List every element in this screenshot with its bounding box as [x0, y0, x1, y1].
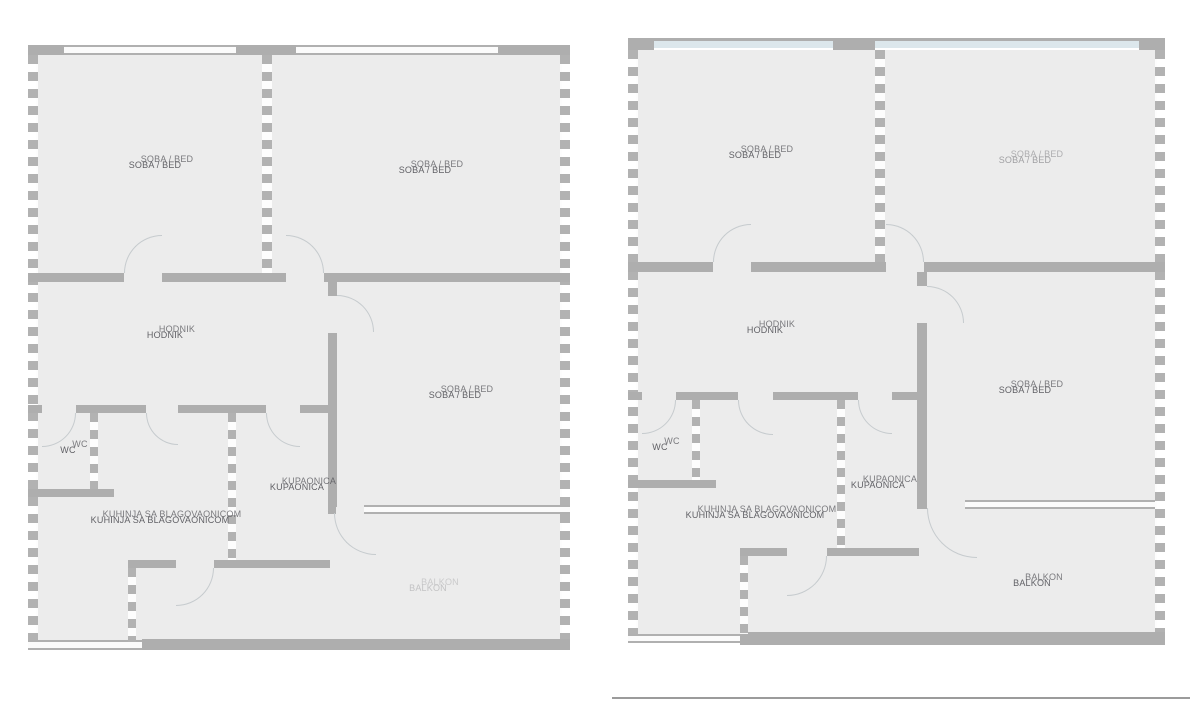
floor-fill	[36, 53, 562, 643]
wall-segment	[917, 272, 927, 286]
room-label-bathroom: KUPAONICA	[851, 480, 905, 490]
room-label-wc: WC	[652, 442, 667, 452]
wall-segment	[142, 639, 570, 650]
wall-segment	[875, 50, 885, 264]
wall-segment	[676, 392, 738, 400]
wall-segment	[300, 405, 330, 413]
window	[628, 634, 743, 643]
wall-segment	[128, 560, 176, 568]
wall-segment	[328, 333, 337, 507]
wall-segment	[833, 38, 875, 50]
room-label-balcony: BALKON	[409, 583, 447, 593]
wall-segment	[751, 262, 886, 272]
wall-segment	[28, 273, 124, 282]
wall-segment	[628, 38, 654, 50]
room-label-bathroom: KUPAONICA	[270, 482, 324, 492]
room-label-hall: HODNIK	[147, 330, 183, 340]
floor-plan-right: SOBA / BED SOBA / BED HODNIK SOBA / BED …	[628, 38, 1165, 645]
wall-segment	[214, 560, 330, 568]
wall-segment	[692, 400, 700, 480]
wall-segment	[498, 45, 570, 55]
wall-segment	[236, 45, 296, 55]
wall-segment	[178, 405, 266, 413]
wall-segment	[262, 55, 272, 273]
divider-line	[612, 697, 1190, 699]
window	[28, 45, 570, 55]
wall-segment	[924, 262, 1165, 272]
wall-segment	[773, 392, 858, 400]
wall-segment	[837, 400, 845, 548]
wall-segment	[28, 405, 42, 413]
room-label-kitchen: KUHINJA SA BLAGOVAONICOM	[686, 510, 825, 520]
wall-segment	[90, 413, 98, 491]
wall-segment	[76, 405, 146, 413]
room-label-hall: HODNIK	[747, 325, 783, 335]
room-label-bedroom: SOBA / BED	[999, 155, 1052, 165]
wall-segment	[162, 273, 286, 282]
room-label-bedroom: SOBA / BED	[729, 150, 782, 160]
wall-segment	[740, 548, 787, 556]
wall-segment	[328, 282, 337, 296]
wall-segment	[28, 489, 114, 497]
window	[965, 500, 1155, 509]
room-label-balcony: BALKON	[1013, 578, 1051, 588]
room-label-bedroom: SOBA / BED	[429, 390, 482, 400]
room-label-bedroom: SOBA / BED	[129, 160, 182, 170]
wall-segment	[892, 392, 919, 400]
room-label-wc: WC	[60, 445, 75, 455]
wall-segment	[628, 392, 642, 400]
wall-segment	[28, 55, 38, 643]
wall-segment	[228, 413, 236, 561]
room-label-bedroom: SOBA / BED	[999, 385, 1052, 395]
wall-segment	[740, 632, 1165, 645]
wall-segment	[1139, 38, 1165, 50]
wall-segment	[1155, 50, 1165, 634]
window	[364, 505, 570, 514]
wall-segment	[324, 273, 570, 282]
wall-segment	[628, 50, 638, 634]
wall-segment	[917, 323, 927, 502]
wall-segment	[628, 262, 713, 272]
wall-segment	[917, 500, 927, 509]
floor-plans-canvas: SOBA / BED SOBA / BED HODNIK SOBA / BED …	[0, 0, 1200, 705]
room-label-kitchen: KUHINJA SA BLAGOVAONICOM	[91, 515, 230, 525]
room-label-bedroom: SOBA / BED	[399, 165, 452, 175]
wall-segment	[560, 55, 570, 643]
wall-segment	[740, 556, 748, 634]
wall-segment	[628, 480, 716, 488]
wall-segment	[128, 568, 136, 642]
window	[628, 41, 1165, 50]
wall-segment	[28, 45, 64, 55]
wall-segment	[827, 548, 919, 556]
floor-plan-left: SOBA / BED SOBA / BED HODNIK SOBA / BED …	[28, 45, 570, 650]
